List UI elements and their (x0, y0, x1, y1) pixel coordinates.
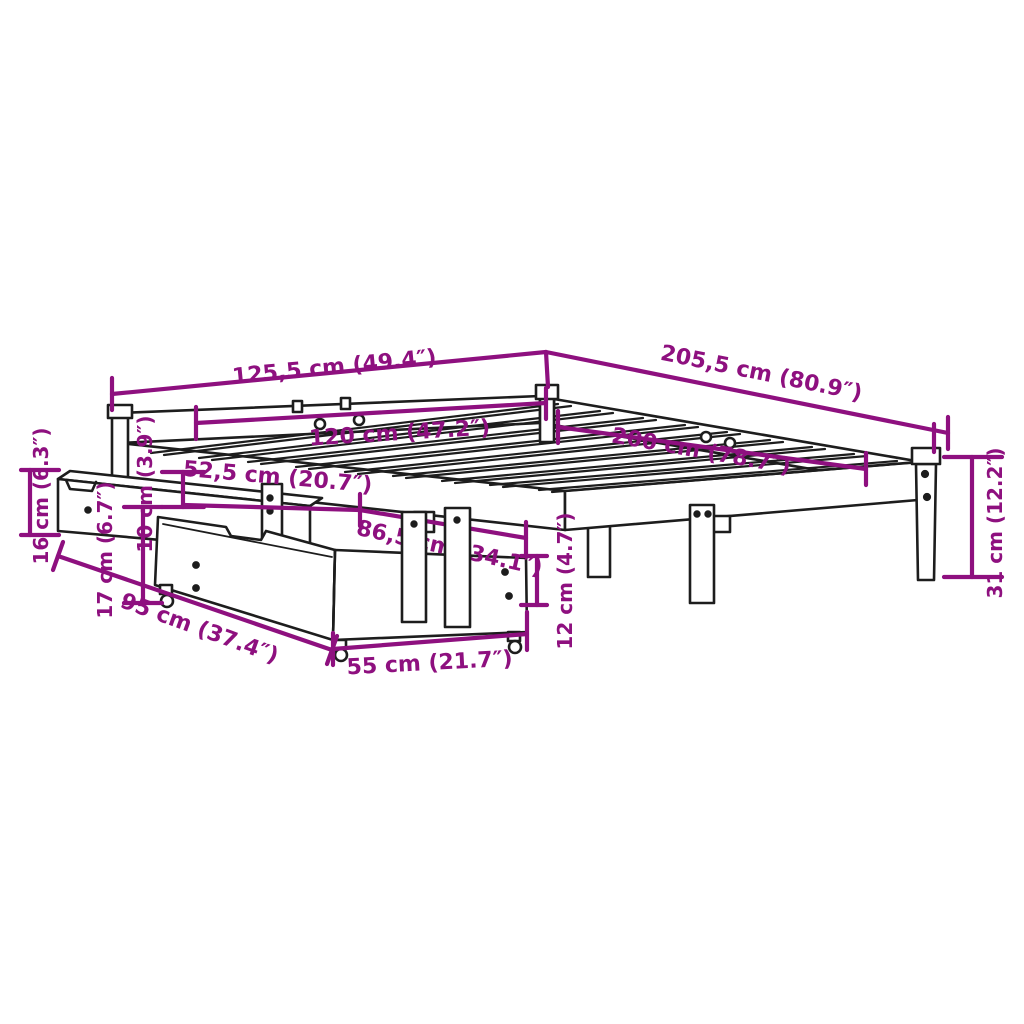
near-rail-leg (402, 512, 426, 622)
screw-icon (695, 512, 700, 517)
screw-icon (922, 471, 928, 477)
screw-icon (506, 593, 511, 598)
upper-drawer-height-label: 16 cm (6.3″) (29, 427, 53, 564)
leg-height-label: 31 cm (12.2″) (983, 447, 1007, 598)
foot-rail-leg (690, 505, 714, 603)
screw-icon (193, 562, 198, 567)
overall-width-label: 125,5 cm (49.4″) (231, 345, 438, 390)
screw-icon (706, 512, 711, 517)
near-rail-leg (445, 508, 470, 627)
under-drawer-height-label: 12 cm (4.7″) (553, 512, 577, 649)
slat-holder-pin (293, 401, 302, 412)
screw-icon (924, 494, 930, 500)
rail-height-label: 10 cm (3.9″) (133, 415, 157, 552)
dimension-diagram: 125,5 cm (49.4″) 205,5 cm (80.9″) 120 cm… (0, 0, 1024, 1024)
drawer-width-label: 55 cm (21.7″) (346, 647, 513, 681)
screw-icon (86, 508, 91, 513)
screw-icon (455, 518, 460, 523)
screw-icon (193, 585, 198, 590)
right-corner-post (916, 464, 936, 580)
screw-icon (412, 522, 417, 527)
slat-holder-pin (341, 398, 350, 409)
lower-drawer-height-label: 17 cm (6.7″) (93, 481, 117, 618)
screw-icon (268, 496, 273, 501)
bed-frame-drawing: 125,5 cm (49.4″) 205,5 cm (80.9″) 120 cm… (0, 0, 1024, 1024)
